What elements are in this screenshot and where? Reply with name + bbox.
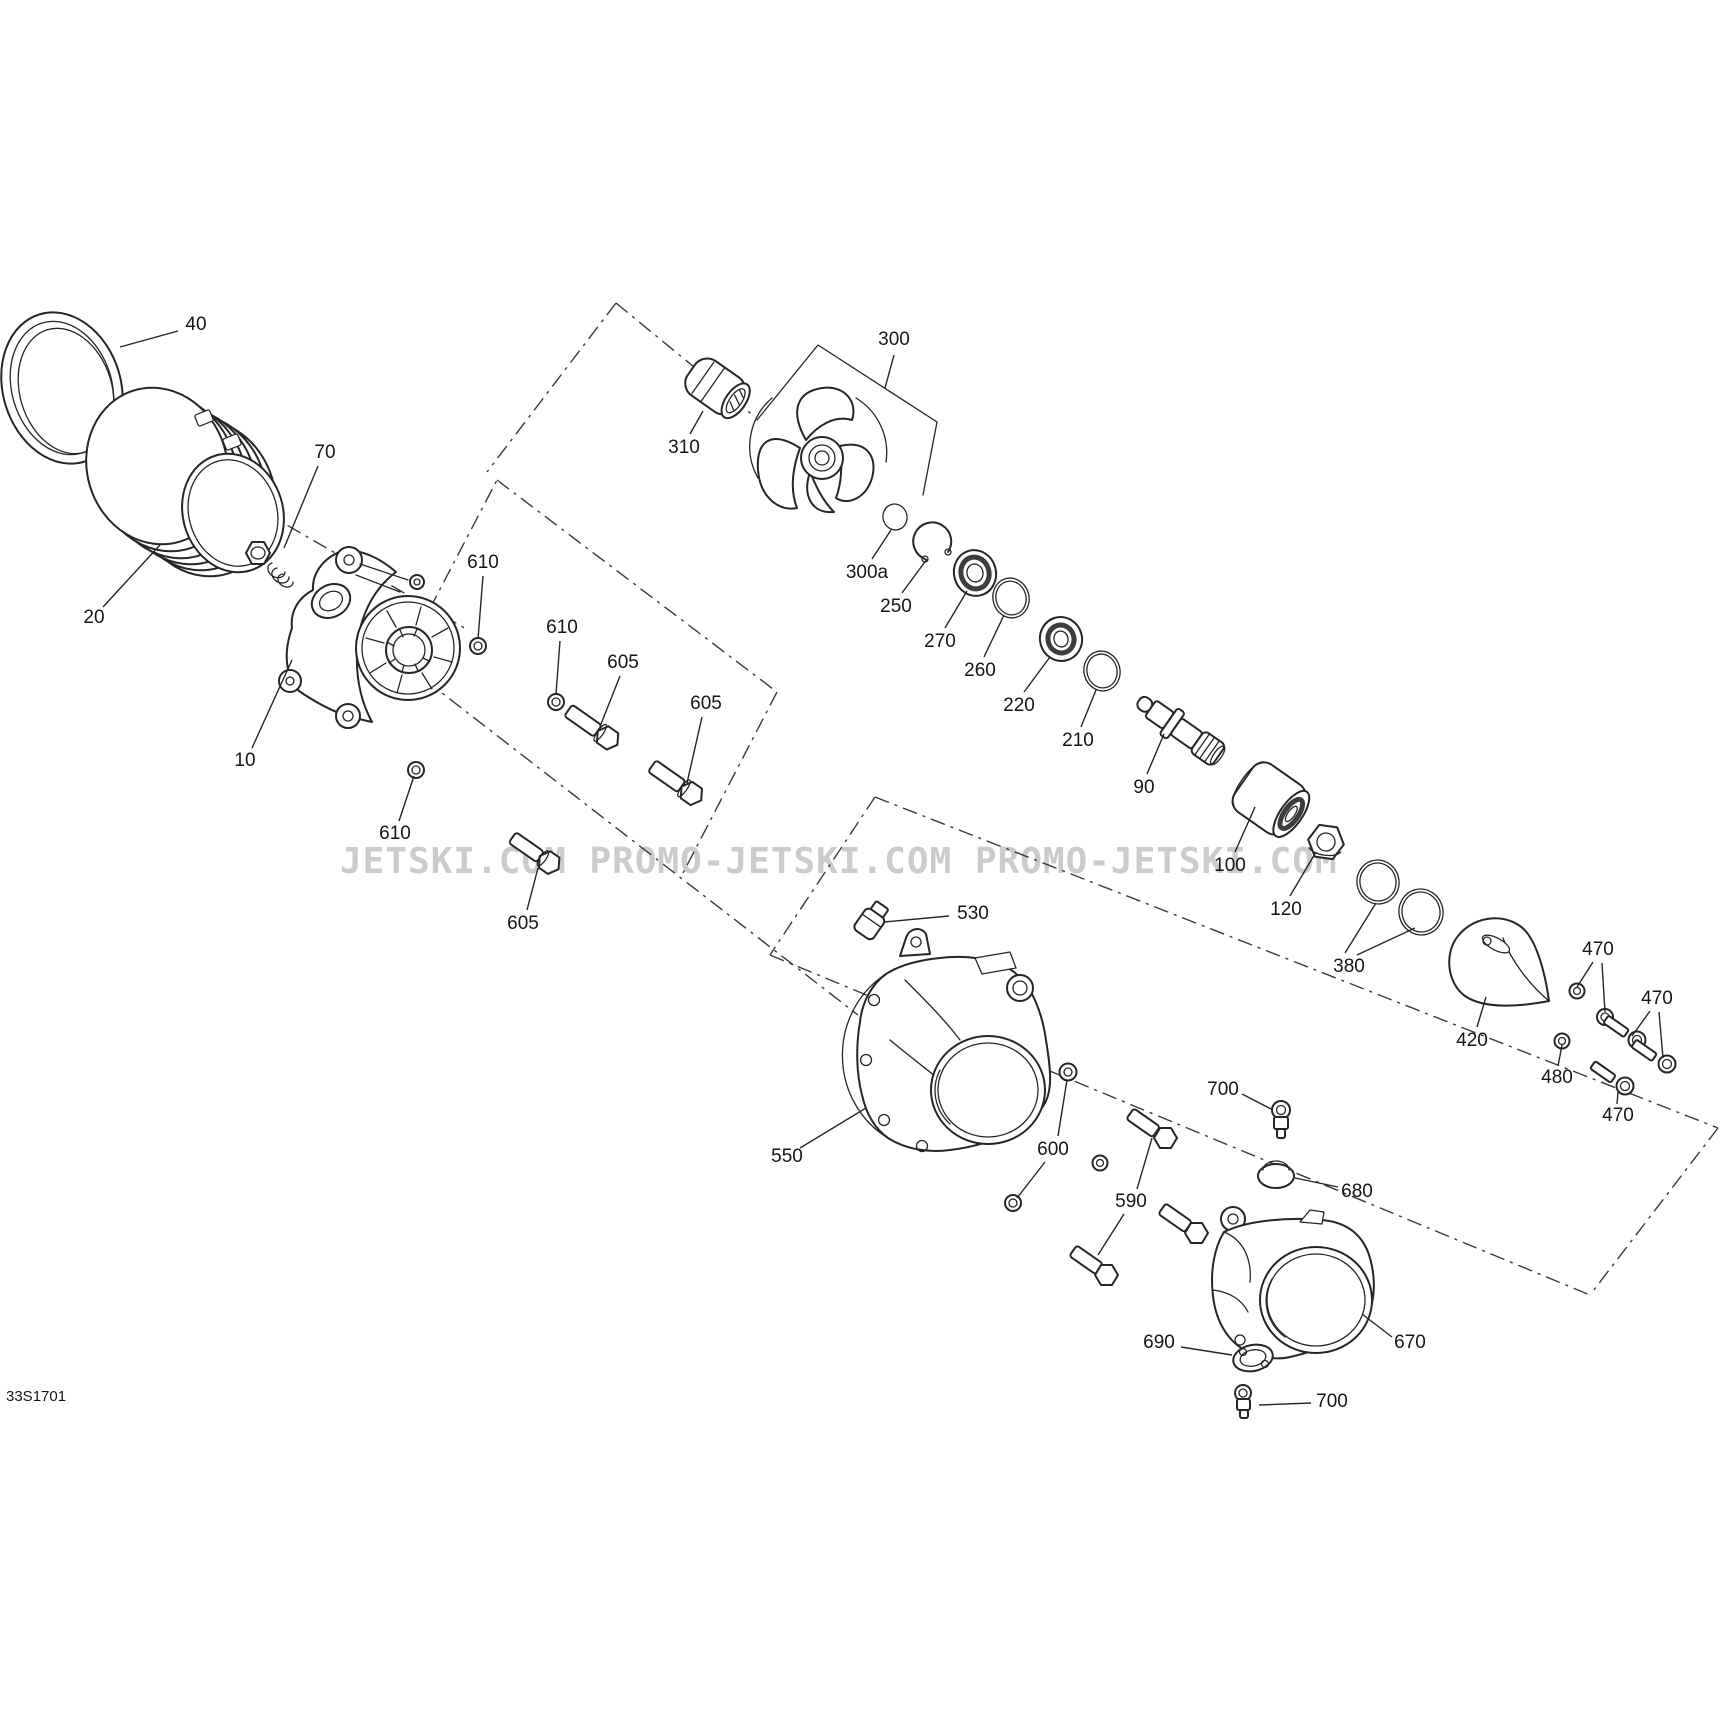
callout-530: 530 bbox=[957, 903, 989, 925]
callout-550: 550 bbox=[771, 1146, 803, 1168]
part-120-nut bbox=[1306, 824, 1346, 861]
part-100-bearing bbox=[1226, 756, 1317, 844]
part-420-cone bbox=[1449, 918, 1549, 1005]
callout-610: 610 bbox=[379, 823, 411, 845]
callout-680: 680 bbox=[1341, 1181, 1373, 1203]
callout-380: 380 bbox=[1333, 956, 1365, 978]
construction-lines bbox=[28, 303, 1718, 1295]
callout-700: 700 bbox=[1316, 1391, 1348, 1413]
callout-70: 70 bbox=[314, 442, 335, 464]
callout-605: 605 bbox=[607, 652, 639, 674]
part-220-bearing bbox=[1035, 612, 1087, 665]
part-250-circlip bbox=[913, 522, 951, 562]
callout-600: 600 bbox=[1037, 1139, 1069, 1161]
callout-480: 480 bbox=[1541, 1067, 1573, 1089]
part-680-cap bbox=[1258, 1161, 1294, 1188]
part-90-shaft bbox=[1130, 687, 1230, 771]
callout-610: 610 bbox=[467, 552, 499, 574]
diagram-artwork bbox=[0, 0, 1721, 1721]
callout-210: 210 bbox=[1062, 730, 1094, 752]
part-10-pump-housing bbox=[279, 547, 460, 728]
part-670-nozzle bbox=[1212, 1207, 1374, 1358]
callout-610: 610 bbox=[546, 617, 578, 639]
callout-470: 470 bbox=[1582, 939, 1614, 961]
callout-300: 300 bbox=[878, 329, 910, 351]
callout-40: 40 bbox=[185, 314, 206, 336]
callout-590: 590 bbox=[1115, 1191, 1147, 1213]
callout-300a: 300a bbox=[846, 562, 888, 584]
callout-690: 690 bbox=[1143, 1332, 1175, 1354]
callout-260: 260 bbox=[964, 660, 996, 682]
callout-270: 270 bbox=[924, 631, 956, 653]
callout-120: 120 bbox=[1270, 899, 1302, 921]
part-605-bolts bbox=[507, 702, 707, 877]
part-310-boot bbox=[679, 353, 756, 424]
part-530-plug bbox=[852, 899, 891, 942]
callout-700: 700 bbox=[1207, 1079, 1239, 1101]
part-300a-oring bbox=[880, 501, 910, 532]
part-380-orings bbox=[1352, 855, 1448, 940]
leader-lines bbox=[103, 331, 1663, 1405]
callout-470: 470 bbox=[1602, 1105, 1634, 1127]
callout-100: 100 bbox=[1214, 855, 1246, 877]
part-210-oring bbox=[1079, 647, 1124, 695]
callout-605: 605 bbox=[507, 913, 539, 935]
callout-420: 420 bbox=[1456, 1030, 1488, 1052]
callout-90: 90 bbox=[1133, 777, 1154, 799]
part-550-venturi bbox=[842, 929, 1050, 1151]
callout-605: 605 bbox=[690, 693, 722, 715]
callout-670: 670 bbox=[1394, 1332, 1426, 1354]
callout-10: 10 bbox=[234, 750, 255, 772]
callout-20: 20 bbox=[83, 607, 104, 629]
drawing-code: 33S1701 bbox=[6, 1388, 66, 1405]
callout-470: 470 bbox=[1641, 988, 1673, 1010]
callout-310: 310 bbox=[668, 437, 700, 459]
part-300-impeller bbox=[750, 345, 937, 512]
callout-250: 250 bbox=[880, 596, 912, 618]
callout-220: 220 bbox=[1003, 695, 1035, 717]
parts-diagram-page: JETSKI.COM PROMO-JETSKI.COM PROMO-JETSKI… bbox=[0, 0, 1721, 1721]
